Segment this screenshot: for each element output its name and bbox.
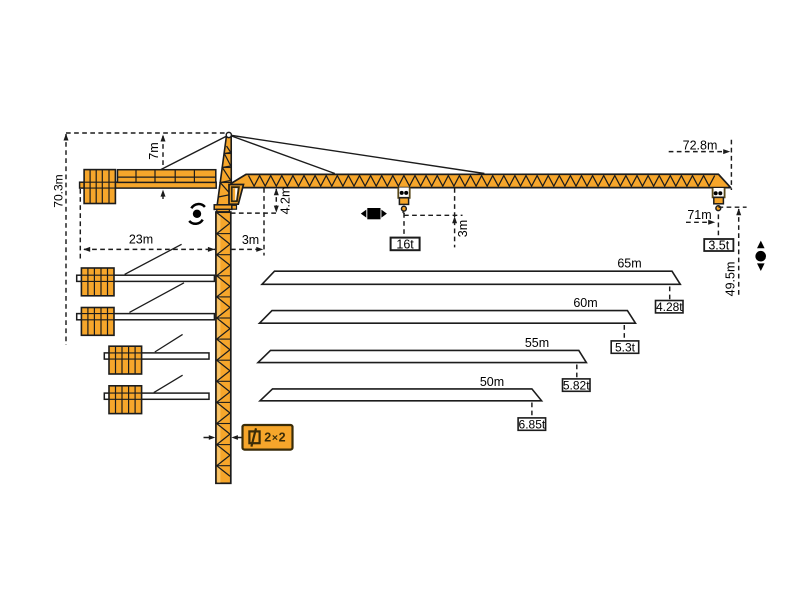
svg-text:2: 2 bbox=[264, 431, 271, 445]
svg-text:16t: 16t bbox=[396, 237, 414, 251]
svg-text:6.85t: 6.85t bbox=[519, 417, 546, 431]
svg-text:50m: 50m bbox=[480, 375, 504, 389]
svg-text:3m: 3m bbox=[242, 233, 259, 247]
svg-text:3.5t: 3.5t bbox=[708, 239, 729, 253]
svg-text:5.3t: 5.3t bbox=[615, 340, 636, 354]
svg-text:55m: 55m bbox=[525, 336, 549, 350]
svg-text:4.28t: 4.28t bbox=[656, 300, 683, 314]
svg-text:3m: 3m bbox=[456, 220, 470, 237]
svg-text:×: × bbox=[272, 432, 278, 444]
svg-text:65m: 65m bbox=[617, 257, 641, 271]
svg-text:4.2m: 4.2m bbox=[279, 187, 293, 215]
svg-text:70.3m: 70.3m bbox=[52, 174, 66, 207]
svg-text:60m: 60m bbox=[573, 296, 597, 310]
svg-text:2: 2 bbox=[279, 431, 286, 445]
svg-text:71m: 71m bbox=[687, 208, 711, 222]
svg-text:72.8m: 72.8m bbox=[683, 139, 718, 153]
svg-text:5.82t: 5.82t bbox=[563, 378, 590, 392]
svg-text:7m: 7m bbox=[147, 142, 161, 159]
svg-text:23m: 23m bbox=[129, 233, 153, 247]
svg-text:49.5m: 49.5m bbox=[724, 262, 738, 297]
